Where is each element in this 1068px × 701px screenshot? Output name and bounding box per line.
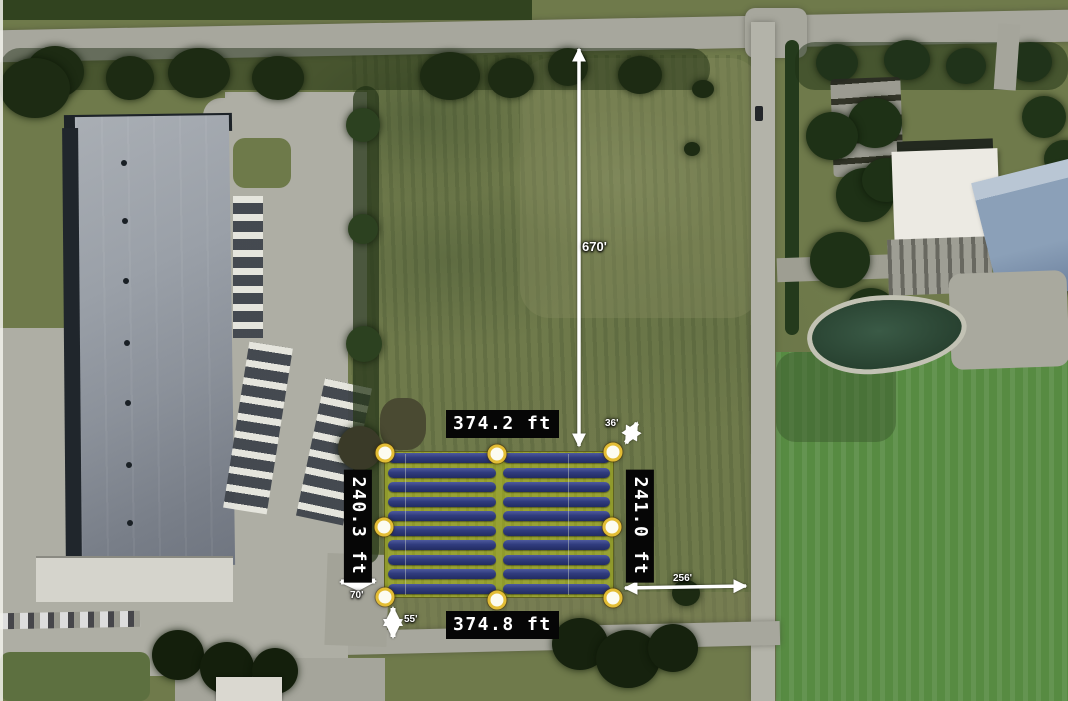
solar-panels [388, 453, 610, 594]
roof-vent [122, 218, 128, 224]
measurement-label-left: 240.3 ft [344, 470, 372, 583]
solar-panel-row [388, 555, 610, 565]
tree [0, 58, 70, 118]
tree [252, 56, 304, 100]
solar-panel-row [388, 511, 610, 521]
distance-label-north: 670' [582, 239, 607, 254]
image-edge-border [0, 0, 3, 701]
vertex-handle-mid-left[interactable] [375, 518, 394, 537]
parked-car-row [0, 611, 140, 629]
distance-label-west: 70' [350, 590, 364, 601]
tree [810, 232, 870, 288]
tree [346, 326, 382, 362]
tree [806, 112, 858, 160]
distance-label-east: 256' [673, 573, 692, 584]
roof-vent [123, 278, 129, 284]
vertex-handle-bottom-mid[interactable] [488, 591, 507, 610]
tree [488, 58, 534, 98]
solar-panel [503, 453, 611, 463]
solar-panel [503, 468, 611, 478]
array-seam-line [568, 454, 569, 595]
building-small-bottom [216, 677, 282, 701]
tree [548, 48, 588, 86]
tree [106, 56, 154, 100]
solar-panel [503, 511, 611, 521]
solar-panel [503, 482, 611, 492]
solar-panel [503, 569, 611, 579]
warehouse-roof [75, 115, 235, 567]
grass-verge-bottom-left [0, 652, 150, 701]
tree [618, 56, 662, 94]
solar-panel-row [388, 569, 610, 579]
tree [692, 80, 714, 98]
driveway-right-parcel [994, 23, 1021, 90]
tree [648, 624, 698, 672]
road-right [751, 22, 775, 701]
warehouse-annex-white [36, 556, 233, 602]
tree [152, 630, 204, 680]
vertex-handle-top-mid[interactable] [488, 445, 507, 464]
tree [1022, 96, 1066, 138]
tree [684, 142, 700, 156]
roof-vent [121, 160, 127, 166]
roof-vent [125, 400, 131, 406]
tree [816, 44, 858, 82]
tree [884, 40, 930, 80]
pavement-southeast [948, 270, 1068, 370]
solar-panel [503, 555, 611, 565]
solar-panel-row [388, 468, 610, 478]
solar-panel-row [388, 540, 610, 550]
tree-strip-north [0, 0, 532, 20]
roof-vent [124, 340, 130, 346]
solar-panel-row [388, 497, 610, 507]
brush-patch-northwest [380, 398, 426, 450]
vertex-handle-bottom-left[interactable] [376, 588, 395, 607]
solar-panel-row [388, 526, 610, 536]
tree [168, 48, 230, 98]
solar-panel-row [388, 482, 610, 492]
measurement-label-right: 241.0 ft [626, 470, 654, 583]
measurement-label-top: 374.2 ft [446, 410, 559, 438]
driveway-loop-island [233, 138, 291, 188]
trailer-row-dock [233, 196, 263, 338]
array-seam-line [405, 454, 406, 595]
vertex-handle-top-right[interactable] [604, 443, 623, 462]
solar-panel [503, 497, 611, 507]
roof-vent [126, 462, 132, 468]
field-light-patch [520, 58, 760, 318]
roof-vent [127, 520, 133, 526]
solar-panel [503, 526, 611, 536]
vertex-handle-top-left[interactable] [376, 444, 395, 463]
tree [946, 48, 986, 84]
hedge-line [785, 40, 799, 335]
tree [420, 52, 480, 100]
vertex-handle-bottom-right[interactable] [604, 589, 623, 608]
vertex-handle-mid-right[interactable] [603, 518, 622, 537]
solar-panel [503, 540, 611, 550]
solar-panel [503, 584, 611, 594]
measurement-label-bottom: 374.8 ft [446, 611, 559, 639]
distance-label-northeast: 36' [605, 418, 619, 429]
tree [346, 108, 380, 142]
vehicle-on-road [755, 106, 763, 121]
distance-label-south: 55' [404, 614, 418, 625]
tree [348, 214, 378, 244]
aerial-map[interactable]: 670' 36' 256' 70' 55' 374.2 ft 374.8 ft … [0, 0, 1068, 701]
solar-array-overlay[interactable] [384, 451, 614, 598]
